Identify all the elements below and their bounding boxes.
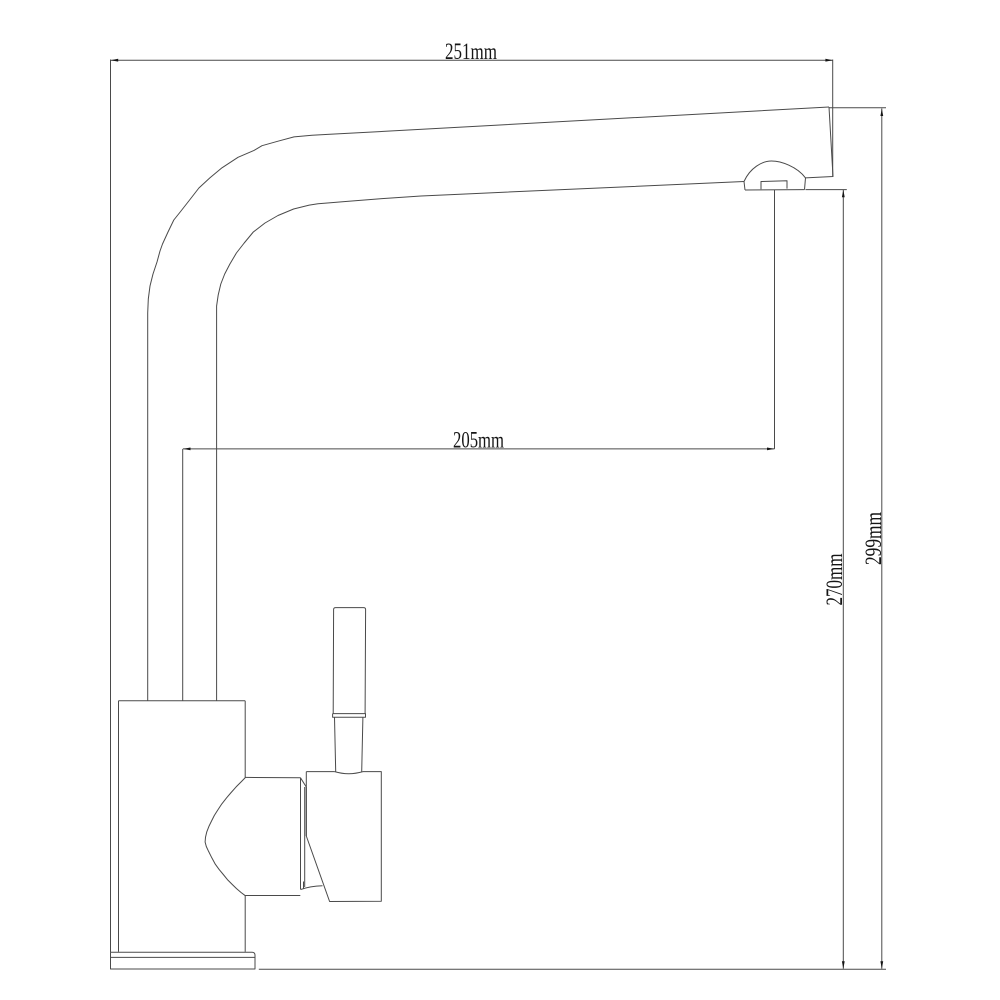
svg-text:205mm: 205mm: [453, 427, 504, 452]
svg-text:299mm: 299mm: [861, 512, 886, 565]
svg-text:270mm: 270mm: [822, 553, 847, 605]
svg-text:251mm: 251mm: [445, 39, 497, 64]
